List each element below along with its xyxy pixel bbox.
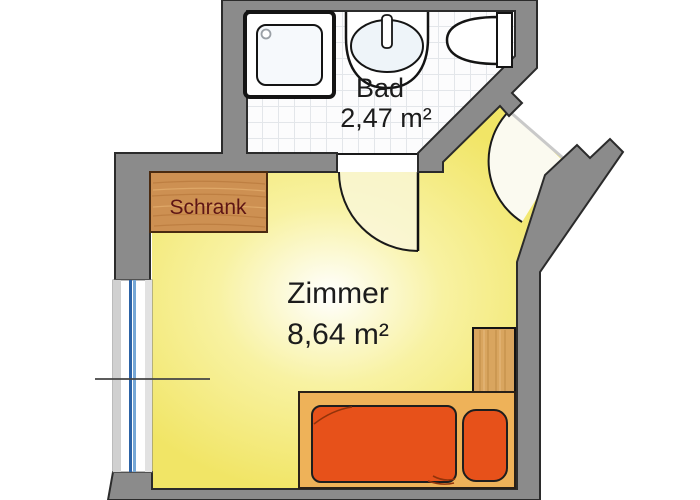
wardrobe-label: Schrank — [169, 196, 247, 219]
floorplan-drawing: Schrank — [0, 0, 700, 500]
toilet — [447, 13, 512, 67]
bed — [299, 392, 515, 488]
shower-drain-icon — [262, 30, 271, 39]
room-area-zimmer: 8,64 m² — [287, 318, 389, 351]
window — [113, 280, 152, 472]
interior-door-swing-area — [339, 172, 418, 251]
room-name-zimmer: Zimmer — [287, 277, 389, 310]
window-glass-line-light — [133, 280, 136, 472]
wardrobe: Schrank — [150, 172, 267, 232]
window-outer-sill — [113, 280, 121, 472]
floorplan-canvas: Schrank — [0, 0, 700, 500]
toilet-tank — [497, 13, 512, 67]
faucet-icon — [382, 15, 392, 48]
bed-duvet — [312, 406, 456, 482]
toilet-bowl — [447, 17, 498, 64]
shower-tray — [245, 12, 334, 97]
room-area-bad: 2,47 m² — [340, 103, 432, 133]
room-name-bad: Bad — [356, 73, 404, 103]
bed-pillow — [463, 410, 507, 481]
window-glass-line-dark — [129, 280, 132, 472]
nightstand — [473, 328, 515, 393]
window-inner-sill — [145, 280, 152, 472]
